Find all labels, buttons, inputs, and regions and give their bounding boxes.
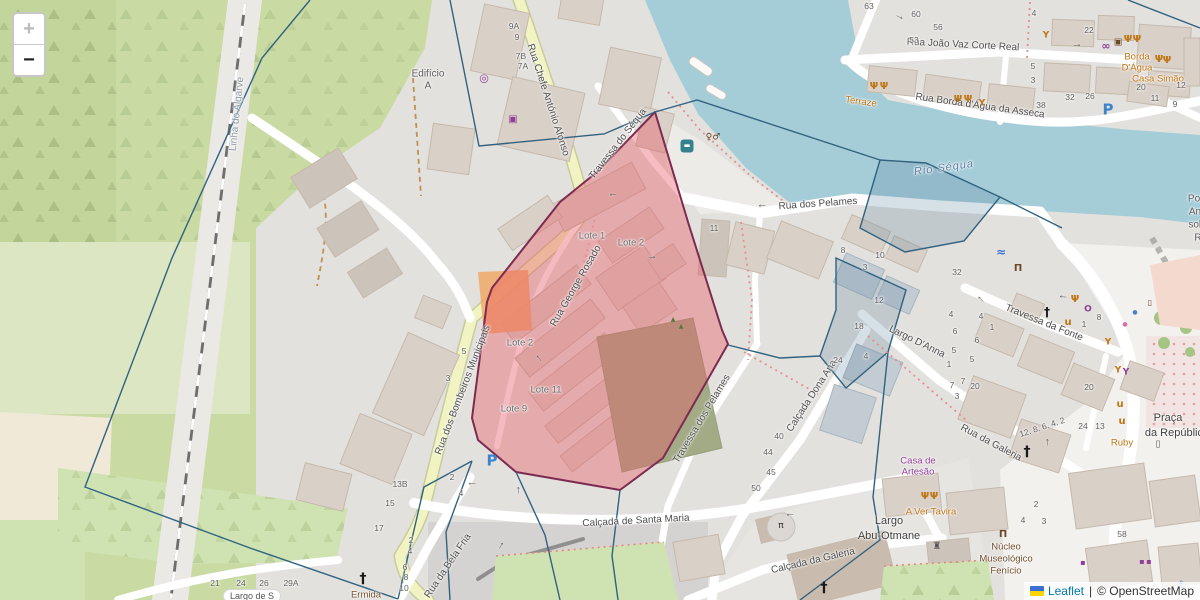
street-rua-da-galeria: Rua da Galeria <box>959 422 1024 463</box>
restaurant-icon: Ψ <box>1163 56 1172 66</box>
house-number: 7B <box>516 51 526 61</box>
house-number: 9 <box>1173 99 1178 109</box>
restaurant-icon: Ψ <box>964 95 973 105</box>
house-number: 1 <box>1082 319 1087 329</box>
house-number: 13 <box>1095 421 1104 431</box>
street-rua-chefe-antonio-afonso: Rua Chefe António Afonso <box>525 43 572 158</box>
oneway-arrow-icon: → <box>1040 437 1052 448</box>
bicycle-rental-icon: ∞ <box>1101 41 1110 52</box>
church-cross-icon: † <box>1024 445 1031 459</box>
poi-ermida: Ermida <box>351 590 381 600</box>
cafe-icon: u <box>1116 400 1123 410</box>
street-rua-george-rosado: Rua George Rosado <box>548 244 603 329</box>
restaurant-icon: Ψ <box>1071 295 1080 305</box>
house-number: 15 <box>385 498 394 508</box>
house-number: 4 <box>949 309 954 319</box>
lote-label: Lote 2 <box>618 238 644 249</box>
oneway-arrow-icon: → <box>530 351 546 367</box>
castle-icon: ♜ <box>933 542 942 552</box>
shop-icon: ▪ <box>1139 558 1144 566</box>
house-number: 29A <box>283 578 298 588</box>
bar-icon: Y <box>979 100 986 109</box>
osm-copyright: © OpenStreetMap <box>1097 584 1194 598</box>
bar-icon: Y <box>1043 32 1050 41</box>
house-number: 26 <box>1085 91 1094 101</box>
lote-label: Lote 1 <box>579 231 605 242</box>
cafe-icon: u <box>1118 417 1125 427</box>
oneway-arrow-icon: → <box>1057 292 1069 305</box>
poi-terraze: Terraze <box>845 94 878 109</box>
restaurant-icon: Ψ <box>870 82 879 92</box>
attribution-divider: | <box>1089 584 1092 598</box>
marker-dot-icon: ● <box>1132 310 1137 316</box>
poi-ponte-antiga: Antiga <box>1189 207 1200 218</box>
water-rio-sequa: Rio Séqua <box>913 158 974 178</box>
oneway-arrow-icon: → <box>757 201 768 213</box>
street-travessa-dos-pelames: Travessa dos Pelames <box>671 373 733 466</box>
house-number: 10 <box>399 583 408 593</box>
street-rua-dos-bombeiros-municipais: Rua dos Bombeiros Municipais <box>433 324 493 457</box>
oneway-arrow-icon: → <box>511 485 523 496</box>
house-number: 2 <box>409 535 414 545</box>
house-number: 2 <box>450 472 455 482</box>
house-number: 17 <box>374 523 383 533</box>
street-rua-dos-pelames: Rua dos Pelames <box>778 196 858 212</box>
house-number: 2 <box>1034 499 1039 509</box>
cafe-icon: u <box>1064 318 1071 328</box>
house-number: 10 <box>875 250 884 260</box>
parking-icon: P <box>1103 103 1114 118</box>
place-praca-da-republica: da República <box>1145 427 1200 439</box>
street-calcada-da-galeria: Calçada da Galeria <box>770 546 856 576</box>
house-number: 1 <box>947 359 952 369</box>
house-number: 18 <box>854 321 863 331</box>
house-number: 63 <box>864 1 873 11</box>
house-number: 6 <box>975 335 980 345</box>
zoom-out-button[interactable]: − <box>14 45 44 75</box>
zoom-in-button[interactable]: + <box>14 14 44 45</box>
lote-label: Lote 11 <box>531 385 562 396</box>
poi-ponte-antiga: sobre o <box>1188 220 1200 231</box>
map-viewport[interactable]: Rua Chefe António AfonsoTravessa do Séqu… <box>0 0 1200 600</box>
toilets-icon: ♀♂ <box>706 134 721 143</box>
house-number: 56 <box>933 22 942 32</box>
shop-icon: ▪ <box>1146 558 1151 566</box>
restaurant-icon: Ψ <box>1124 35 1133 45</box>
house-number: 3 <box>1031 75 1036 85</box>
parking-icon: P <box>487 454 498 469</box>
restaurant-icon: Ψ <box>954 95 963 105</box>
house-number: 6 <box>953 326 958 336</box>
poi-borda-dagua: D'Água <box>1122 63 1153 74</box>
house-number: 32 <box>952 267 961 277</box>
house-number: 32 <box>1065 92 1074 102</box>
marker-dot-icon: ● <box>1122 322 1127 328</box>
house-number: 4 <box>1021 515 1026 525</box>
house-number: 53 <box>909 35 918 45</box>
house-number: 7 <box>950 380 955 390</box>
oneway-arrow-icon: → <box>892 8 907 24</box>
house-number: 12. 8. 6. 4. 2 <box>1018 415 1066 439</box>
church-cross-icon: † <box>360 572 367 586</box>
house-number: 44 <box>763 447 772 457</box>
memorial-icon: ▯ <box>1148 299 1152 307</box>
house-number: 8 <box>841 245 846 255</box>
fountain-icon: ≈ <box>996 246 1006 258</box>
tree-icon: ▲ <box>671 317 676 323</box>
house-number: 60 <box>911 9 920 19</box>
bar-icon: Y <box>1105 339 1112 348</box>
bar-icon: Y <box>1123 369 1130 378</box>
poi-a-ver-tavira: A Ver Tavira <box>906 507 957 518</box>
oneway-arrow-icon: → <box>467 479 478 491</box>
house-number: 3 <box>1042 516 1047 526</box>
lote-label: Lote 2 <box>507 338 533 349</box>
lote-label: Lote 9 <box>501 404 527 415</box>
oneway-arrow-icon: → <box>785 510 796 522</box>
house-number: 45 <box>766 467 775 477</box>
house-number: 3 <box>955 391 960 401</box>
shop-casa-de-artesao: Casa de <box>900 456 935 467</box>
place-edificio-a: Edifício <box>412 69 445 80</box>
house-number: 5 <box>1031 61 1036 71</box>
jewelry-icon: O <box>1084 306 1092 315</box>
attribution-bar: Leaflet | © OpenStreetMap <box>1024 582 1200 600</box>
shop-icon: ▪ <box>1080 559 1085 567</box>
house-number: 3 <box>446 373 451 383</box>
house-number: 20 <box>1084 382 1093 392</box>
house-number: 20 <box>970 381 979 391</box>
street-rua-joao-vaz-corte-real: Rua João Vaz Corte Real <box>906 37 1019 54</box>
poi-ruby: Ruby <box>1111 438 1133 449</box>
oneway-arrow-icon: → <box>972 292 988 308</box>
house-number: 5 <box>970 354 975 364</box>
poi-borda-dagua: Borda <box>1124 52 1149 63</box>
house-number: 5 <box>952 345 957 355</box>
house-number: 4 <box>1032 8 1037 18</box>
place-largo-abu-otmane: Largo <box>875 515 903 527</box>
poi-nucleo-museologico: Fenício <box>990 566 1021 577</box>
house-number: 50 <box>751 483 760 493</box>
house-number: 7 <box>961 376 966 386</box>
poi-ponte-antiga: Ponte <box>1188 194 1200 205</box>
house-number: 22 <box>1084 25 1093 35</box>
church-cross-icon: † <box>821 581 828 595</box>
museum-icon: Π <box>999 530 1007 540</box>
bus-stop-icon: ▬ <box>681 140 694 153</box>
house-number: 4 <box>408 546 413 556</box>
restaurant-icon: Ψ <box>930 492 939 502</box>
house-number: 26 <box>259 578 268 588</box>
ukraine-flag-icon <box>1030 586 1044 596</box>
house-number: 9A <box>509 21 519 31</box>
place-largo-abu-otmane: Abu-Otmane <box>858 530 920 542</box>
house-number: 20 <box>1136 82 1145 92</box>
house-number: 3 <box>863 262 868 272</box>
house-number: 24 <box>1078 421 1087 431</box>
house-number: 6 <box>403 562 408 572</box>
house-number: 11 <box>710 223 719 233</box>
house-number: 9 <box>515 32 520 42</box>
artwork-icon: ▣ <box>1114 39 1123 48</box>
church-cross-icon: † <box>1044 306 1050 318</box>
oneway-arrow-icon: → <box>492 537 508 553</box>
street-calcada-de-santa-maria: Calçada de Santa Maria <box>582 513 690 530</box>
museum-icon: Π <box>1014 264 1022 274</box>
oneway-arrow-icon: → <box>608 190 619 202</box>
house-number: 8 <box>404 572 409 582</box>
house-number: 38 <box>1036 100 1045 110</box>
railway-linha-do-algarve: Linha do Algarve <box>228 76 247 151</box>
tree-icon: ▲ <box>679 324 684 330</box>
monument-icon: ▯ <box>1156 441 1161 450</box>
restaurant-icon: Ψ <box>1133 35 1142 45</box>
poi-ponte-antiga: Rio Gilão <box>1194 233 1200 244</box>
oneway-arrow-icon: → <box>647 250 658 262</box>
street-calcada-dona-ana: Calçada Dona Ana <box>785 358 840 434</box>
place-largo-de-s: Largo de S <box>223 589 281 600</box>
street-largo-danna: Largo D'Anna <box>887 324 947 361</box>
house-number: 21 <box>210 578 219 588</box>
zoom-control: + − <box>12 12 46 77</box>
house-number: 4 <box>864 351 869 361</box>
bar-icon: Y <box>1115 367 1122 376</box>
street-rua-da-bela-fria: Rua da Bela Fria <box>422 532 473 600</box>
house-number: 1 <box>990 322 995 332</box>
house-number: 13B <box>392 479 407 489</box>
house-number: 4 <box>979 311 984 321</box>
amenity-circle-icon: ◎ <box>479 73 489 84</box>
house-number: 8 <box>1097 312 1102 322</box>
house-number: 58 <box>1117 529 1126 539</box>
shop-icon: ▣ <box>508 115 517 125</box>
house-number: 11 <box>1151 93 1160 103</box>
house-number: 24 <box>236 578 245 588</box>
house-number: 40 <box>774 431 783 441</box>
oneway-arrow-icon: → <box>1072 38 1083 50</box>
leaflet-link[interactable]: Leaflet <box>1048 584 1084 598</box>
restaurant-icon: Ψ <box>880 82 889 92</box>
house-number: 12 <box>1176 80 1185 90</box>
street-travessa-do-sequa: Travessa do Séqua <box>587 107 649 182</box>
house-number: 12 <box>874 295 883 305</box>
map-labels-layer: Rua Chefe António AfonsoTravessa do Séqu… <box>0 0 1200 600</box>
poi-nucleo-museologico: Museológico <box>979 554 1032 565</box>
place-edificio-a: A <box>425 81 432 92</box>
shop-casa-de-artesao: Artesão <box>902 467 935 478</box>
place-praca-da-republica: Praça <box>1154 412 1183 424</box>
restaurant-icon: Ψ <box>921 492 930 502</box>
house-number: 24 <box>833 355 842 365</box>
poi-nucleo-museologico: Núcleo <box>991 542 1021 553</box>
house-number: 5 <box>462 346 467 356</box>
house-number: 4 <box>459 488 464 498</box>
house-number: 7A <box>518 61 528 71</box>
